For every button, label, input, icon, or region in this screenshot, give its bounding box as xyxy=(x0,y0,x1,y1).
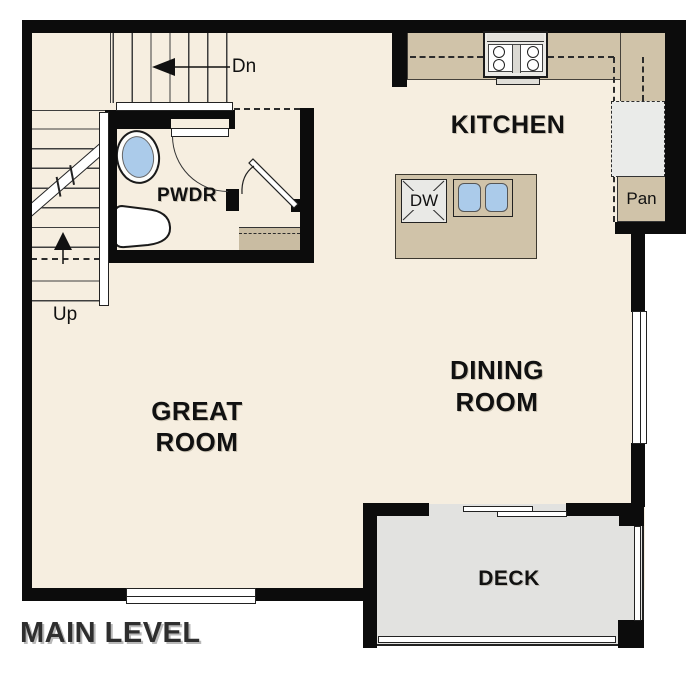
stairs-up-treads-lower xyxy=(31,262,100,306)
floor-plan: Dn Up Pan xyxy=(0,0,687,687)
upper-cabinet-dashed-corner xyxy=(642,57,644,101)
dining-room-window xyxy=(632,311,647,444)
wall-right-upper xyxy=(665,20,686,234)
stair-landing-edge xyxy=(116,102,233,111)
great-room-label: GREAT ROOM xyxy=(97,396,297,458)
sink-bowl-left xyxy=(458,183,481,212)
wall-deck-left xyxy=(363,503,377,648)
deck-corner-topright xyxy=(619,503,644,526)
toilet xyxy=(108,202,178,252)
kitchen-label: KITCHEN xyxy=(408,111,608,140)
wall-kitchen-stub xyxy=(392,25,407,87)
burner xyxy=(527,46,539,58)
burner xyxy=(493,46,505,58)
wall-left xyxy=(22,20,32,601)
wall-dining-right-b xyxy=(631,443,645,507)
great-label-line2: ROOM xyxy=(97,427,297,458)
stove-handle xyxy=(496,78,540,85)
closet-dashed-opening xyxy=(234,108,300,110)
wall-powder-bottom xyxy=(105,250,314,263)
stairs-down-label: Dn xyxy=(223,56,265,78)
wall-dining-right-a xyxy=(631,234,645,312)
great-label-line1: GREAT xyxy=(97,396,297,427)
stairs-up-arrow-icon xyxy=(50,226,78,268)
stove-burner-area xyxy=(488,44,543,72)
window-pane-line xyxy=(127,596,255,597)
stair-handrail xyxy=(99,112,109,306)
great-room-window xyxy=(126,588,256,604)
closet-shelf xyxy=(239,227,300,252)
closet-door xyxy=(235,145,305,215)
kitchen-sink xyxy=(453,179,513,217)
stairs-up-label: Up xyxy=(44,304,86,326)
upper-cabinet-dashed-left xyxy=(410,56,483,58)
stove xyxy=(483,31,548,78)
dining-label-line1: DINING xyxy=(397,354,597,386)
break-tick xyxy=(55,177,61,197)
exterior-right xyxy=(645,234,687,687)
stair-landing-line-v xyxy=(110,33,111,103)
powder-sink-bowl xyxy=(119,134,157,180)
deck-railing-bottom xyxy=(378,636,616,643)
kitchen-island: DW xyxy=(395,174,537,259)
refrigerator-space xyxy=(611,101,665,177)
window-pane-line xyxy=(640,312,641,443)
stairs-down-arrow-icon xyxy=(148,53,234,81)
sliding-door-panel-b xyxy=(497,511,567,517)
deck-railing-right xyxy=(634,526,641,621)
burner xyxy=(527,59,539,71)
break-tick xyxy=(69,165,75,185)
pantry: Pan xyxy=(617,176,666,222)
upper-cabinet-dashed-right xyxy=(548,56,614,58)
wall-right-jog xyxy=(615,222,686,234)
dishwasher-label: DW xyxy=(402,191,446,211)
dining-room-label: DINING ROOM xyxy=(397,354,597,418)
closet-shelf-dashed xyxy=(239,233,300,234)
sink-bowl-right xyxy=(485,183,508,212)
powder-room-label: PWDR xyxy=(137,185,237,207)
wall-deck-top-left xyxy=(363,503,429,516)
dining-label-line2: ROOM xyxy=(397,386,597,418)
stove-center-divider xyxy=(512,45,521,73)
burner xyxy=(493,59,505,71)
deck-label: DECK xyxy=(409,567,609,591)
dishwasher: DW xyxy=(401,179,447,223)
wall-top xyxy=(22,20,686,33)
plan-title: MAIN LEVEL xyxy=(20,617,201,650)
stove-control-panel xyxy=(487,34,544,42)
deck-corner-bottomright xyxy=(618,620,644,648)
